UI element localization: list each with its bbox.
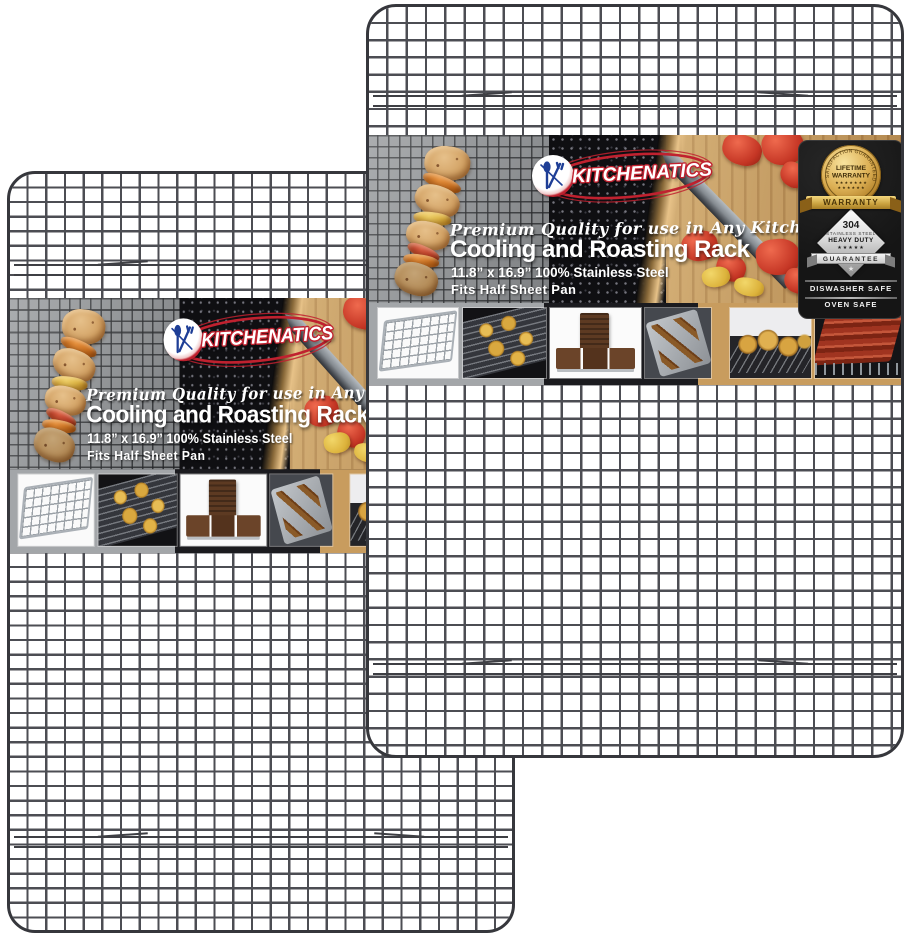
rack-support-bar: [14, 836, 508, 848]
logo-utensils-icon: [164, 318, 204, 361]
cooling-rack-back: KITCHENATICS Premium Quality for use in …: [366, 4, 904, 758]
seal-line2: WARRANTY: [832, 173, 871, 180]
thumbnail-cooling-rack: [18, 474, 93, 545]
kitchenatics-logo: KITCHENATICS: [532, 145, 710, 209]
fits-text: Fits Half Sheet Pan: [451, 282, 576, 297]
kitchenatics-logo: KITCHENATICS: [164, 308, 332, 373]
thumbnail-chocolate-bars: [550, 308, 641, 378]
product-title: Cooling and Roasting Rack: [86, 401, 368, 430]
size-spec-text: 11.8” x 16.9” 100% Stainless Steel: [87, 431, 292, 446]
logo-utensils-icon: [532, 155, 574, 197]
package-sleeve: KITCHENATICS Premium Quality for use in …: [366, 135, 904, 385]
dishwasher-safe-text: DISWASHER SAFE: [799, 284, 903, 293]
diamond-stars: ★★★★★: [805, 245, 897, 252]
thumbnail-skewers-on-tray: [270, 474, 332, 545]
fits-text: Fits Half Sheet Pan: [87, 448, 205, 463]
thumbnail-chocolate-bars: [181, 474, 267, 545]
panel-divider: [805, 297, 897, 299]
package-sleeve-artwork: KITCHENATICS Premium Quality for use in …: [366, 135, 904, 385]
warranty-panel: SATISFACTION GUARANTEED LIFETIME WARRANT…: [798, 140, 904, 319]
product-photo-two-cooling-racks: KITCHENATICS Premium Quality for use in …: [0, 0, 915, 939]
thumbnail-cookies-on-rack: [98, 474, 176, 545]
panel-divider: [805, 280, 897, 282]
steel-grade-number: 304: [805, 220, 897, 231]
oven-safe-text: OVEN SAFE: [799, 300, 903, 309]
seal-arc-text: SATISFACTION GUARANTEED: [825, 148, 877, 182]
guarantee-ribbon: GUARANTEE: [811, 253, 891, 264]
rack-support-bar: [373, 95, 897, 107]
thumbnail-skewers-on-tray: [645, 308, 711, 378]
guarantee-star: ★: [799, 265, 903, 273]
seal-stars-row2: ★ ★ ★ ★ ★ ★: [837, 185, 864, 190]
seal-line1: LIFETIME: [836, 165, 867, 172]
rack-support-bar: [373, 663, 897, 675]
heavy-duty-text: HEAVY DUTY: [805, 237, 897, 245]
warranty-ribbon: WARRANTY: [806, 196, 896, 209]
thumbnail-muffins-on-rack: [730, 308, 811, 378]
spec-diamond-text: 304 STAINLESS STEEL HEAVY DUTY ★★★★★: [805, 220, 897, 252]
seal-stars-row1: ★ ★ ★ ★ ★ ★ ★: [835, 180, 867, 185]
product-title: Cooling and Roasting Rack: [450, 236, 750, 264]
thumbnail-cooling-rack: [378, 308, 458, 378]
size-spec-text: 11.8” x 16.9” 100% Stainless Steel: [451, 265, 669, 280]
thumbnail-cookies-on-rack: [463, 308, 546, 378]
